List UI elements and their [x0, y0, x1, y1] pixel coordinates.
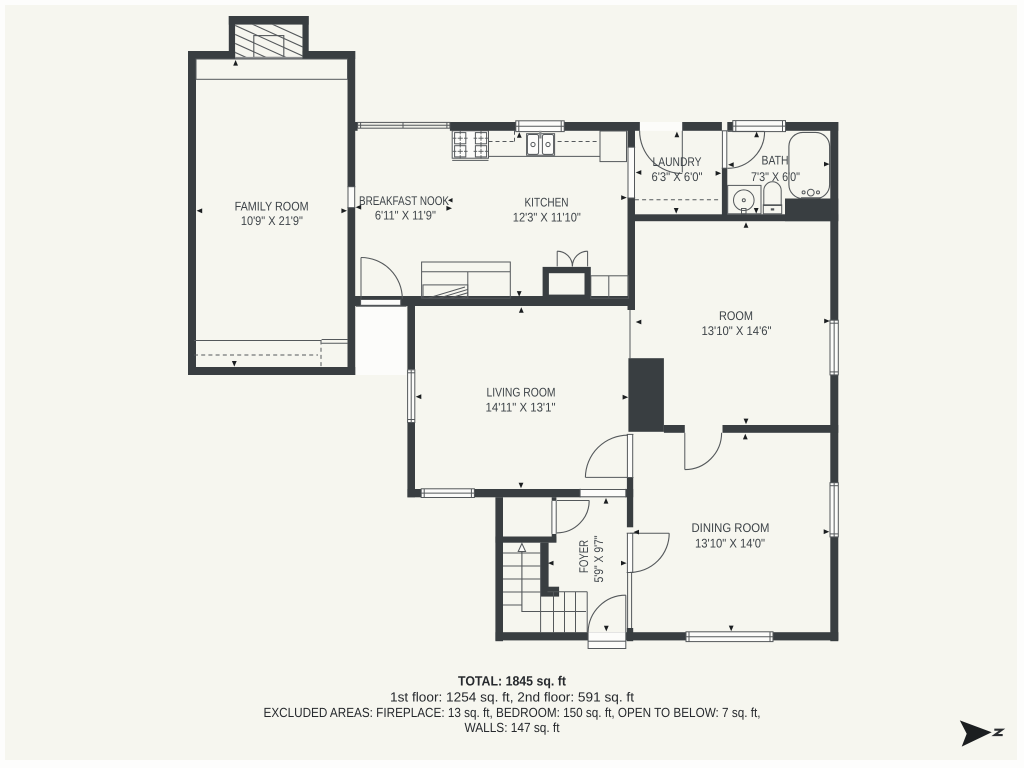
svg-text:WALLS: 147 sq. ft: WALLS: 147 sq. ft — [465, 720, 560, 735]
svg-text:FAMILY ROOM: FAMILY ROOM — [235, 200, 309, 214]
svg-text:KITCHEN: KITCHEN — [525, 196, 569, 210]
svg-text:6'11" X 11'9": 6'11" X 11'9" — [375, 209, 436, 223]
svg-text:13'10" X 14'6": 13'10" X 14'6" — [702, 324, 772, 338]
svg-text:5'9" X 9'7": 5'9" X 9'7" — [592, 536, 606, 583]
svg-text:LIVING ROOM: LIVING ROOM — [487, 386, 556, 400]
svg-text:BATH: BATH — [762, 153, 789, 167]
svg-text:TOTAL: 1845 sq. ft: TOTAL: 1845 sq. ft — [458, 674, 566, 689]
svg-text:BREAKFAST NOOK: BREAKFAST NOOK — [359, 194, 449, 208]
svg-text:13'10" X 14'0": 13'10" X 14'0" — [695, 537, 765, 551]
svg-text:6'3" X 6'0": 6'3" X 6'0" — [652, 170, 703, 184]
svg-text:FOYER: FOYER — [577, 540, 591, 573]
svg-text:ROOM: ROOM — [719, 309, 753, 323]
svg-text:1st floor: 1254 sq. ft, 2nd fl: 1st floor: 1254 sq. ft, 2nd floor: 591 s… — [390, 690, 634, 705]
svg-text:EXCLUDED AREAS: FIREPLACE: 13: EXCLUDED AREAS: FIREPLACE: 13 sq. ft, BE… — [264, 705, 761, 720]
svg-text:DINING ROOM: DINING ROOM — [692, 521, 770, 535]
svg-text:10'9" X 21'9": 10'9" X 21'9" — [241, 214, 303, 228]
svg-text:LAUNDRY: LAUNDRY — [653, 155, 702, 169]
svg-text:7'3" X 6'0": 7'3" X 6'0" — [751, 170, 800, 184]
svg-text:12'3" X 11'10": 12'3" X 11'10" — [513, 210, 581, 224]
svg-text:14'11" X 13'1": 14'11" X 13'1" — [486, 400, 556, 414]
